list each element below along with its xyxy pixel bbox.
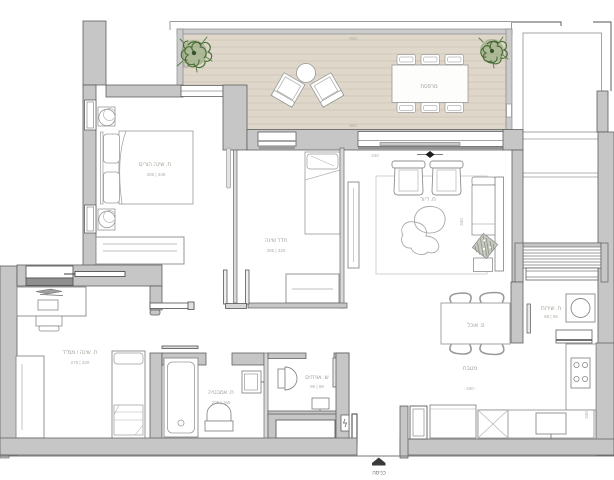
svg-text:340: 340: [459, 218, 464, 226]
svg-text:ח. דיור: ח. דיור: [420, 197, 436, 203]
svg-text:חדר שינה: חדר שינה: [265, 238, 288, 244]
svg-text:ח. שינה / ממ"ד: ח. שינה / ממ"ד: [63, 350, 98, 356]
svg-text:- 340 -: - 340 -: [463, 386, 477, 391]
svg-text:285 | 320: 285 | 320: [267, 248, 286, 253]
svg-text:ש. אורחים: ש. אורחים: [305, 375, 328, 381]
svg-text:מטבח: מטבח: [463, 366, 478, 372]
svg-text:340: 340: [371, 153, 379, 158]
svg-text:ח. אמבטיה: ח. אמבטיה: [208, 390, 234, 396]
svg-text:940: 940: [349, 123, 357, 128]
svg-text:ח. שירות: ח. שירות: [541, 306, 562, 312]
svg-text:ח. שינה הורים: ח. שינה הורים: [139, 162, 172, 168]
svg-text:כניסה: כניסה: [372, 471, 386, 477]
svg-text:285 | 345: 285 | 345: [147, 172, 166, 177]
svg-text:205 | 165: 205 | 165: [212, 400, 231, 405]
svg-text:95 | 88: 95 | 88: [310, 384, 324, 389]
svg-text:275 | 320: 275 | 320: [71, 360, 90, 365]
svg-text:פ. אוכל: פ. אוכל: [468, 322, 486, 329]
svg-text:מרפסת: מרפסת: [420, 84, 437, 90]
svg-text:340: 340: [584, 411, 589, 419]
svg-text:88 | 66: 88 | 66: [544, 314, 558, 319]
svg-text:940: 940: [349, 36, 357, 41]
